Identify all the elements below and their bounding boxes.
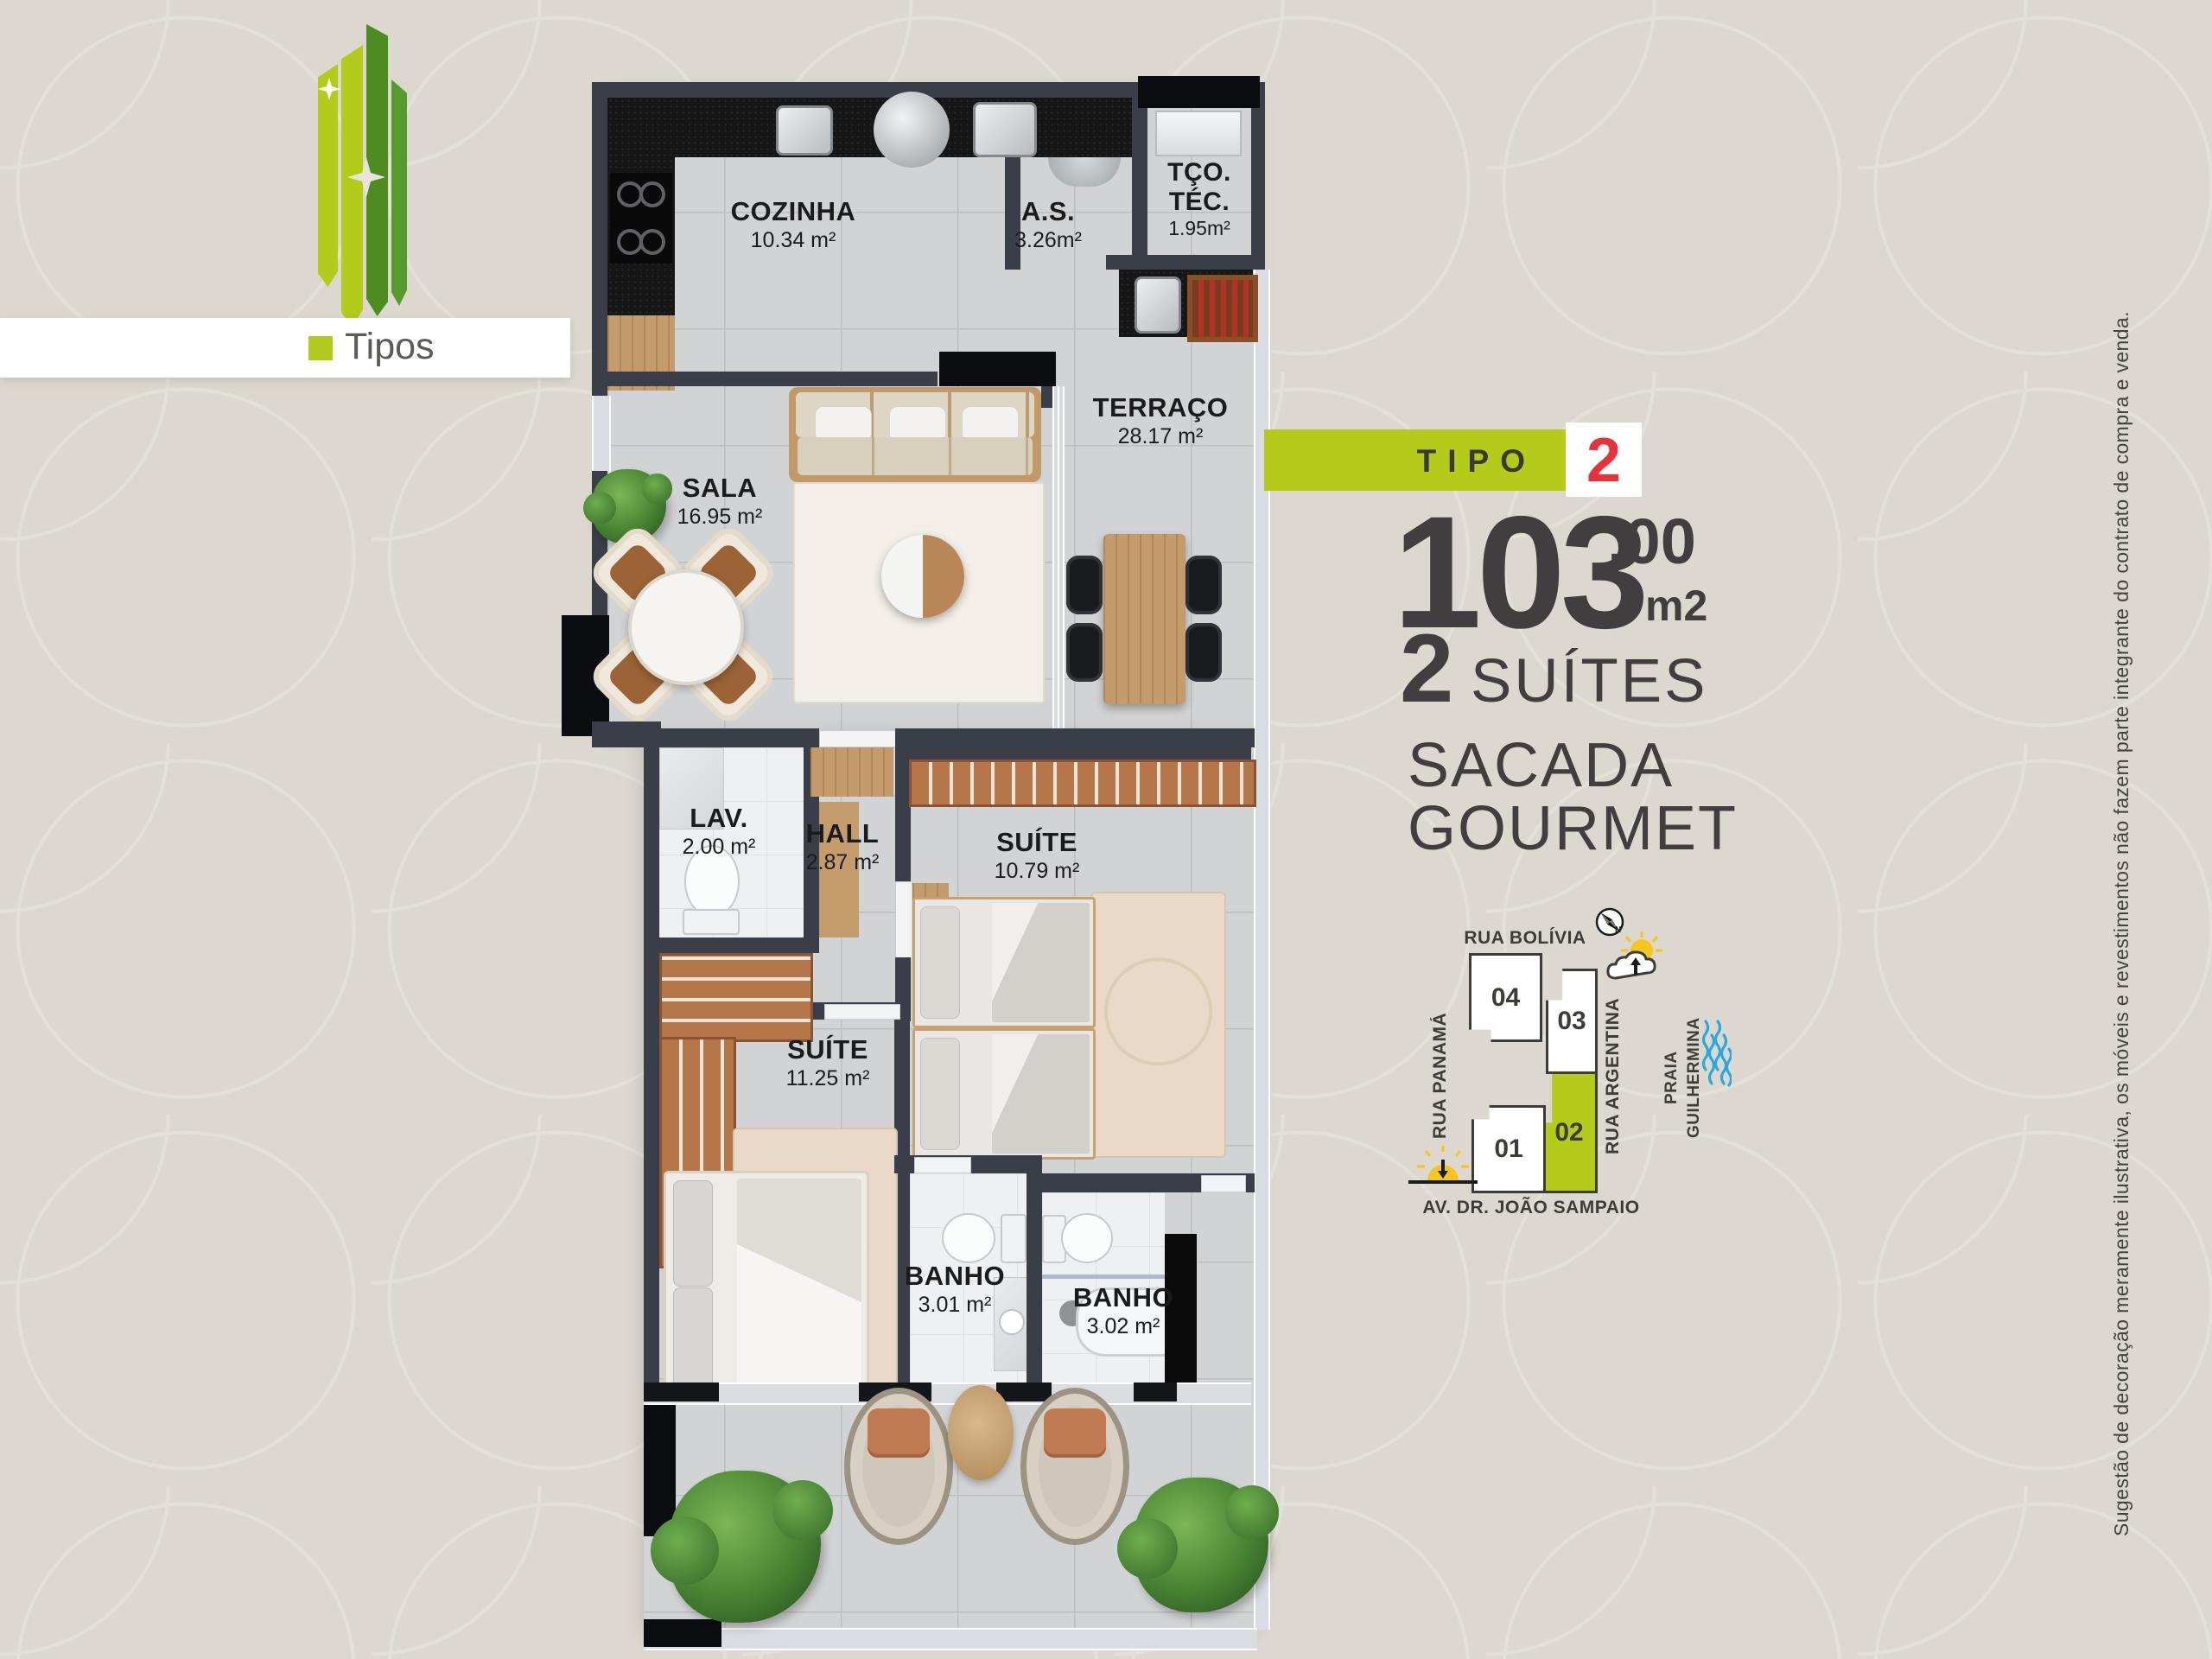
- waves-icon: [1702, 1020, 1732, 1122]
- wall: [592, 728, 819, 747]
- terrace-chair: [1066, 556, 1103, 614]
- feature-sacada: SACADA: [1408, 734, 1674, 797]
- door-opening: [1201, 1175, 1246, 1192]
- shower-glass: [1042, 1274, 1165, 1279]
- gourmet-sink: [1135, 276, 1181, 334]
- suites-label: SUÍTES: [1471, 651, 1707, 712]
- tv-panel: [939, 352, 1056, 386]
- single-bed: [912, 897, 1096, 1028]
- wall: [1106, 255, 1255, 270]
- logo-sparkles-icon: [311, 12, 415, 320]
- single-bed: [912, 1028, 1096, 1160]
- dining-table: [628, 569, 744, 685]
- feature-gourmet: GOURMET: [1408, 798, 1738, 860]
- room-label-terraco: TERRAÇO 28.17 m²: [1074, 393, 1247, 450]
- room-label-banho2: BANHO 3.02 m²: [1050, 1283, 1197, 1340]
- wall: [592, 82, 607, 400]
- tipos-band: Tipos: [0, 318, 570, 378]
- page: Tipos: [0, 0, 2212, 1659]
- tipo-label: TIPO: [1417, 429, 1536, 491]
- toilet-tank: [683, 909, 740, 935]
- kitchen-sink: [776, 105, 833, 156]
- kitchen-countertop: [607, 98, 1132, 157]
- room-label-lav: LAV. 2.00 m²: [650, 804, 788, 861]
- double-bed: [664, 1171, 869, 1403]
- closet: [909, 760, 1256, 807]
- terrace-chair: [1066, 623, 1103, 682]
- sunrise-cloud-icon: [1604, 930, 1668, 987]
- room-label-tco-tec: TÇO. TÉC. 1.95m²: [1147, 158, 1251, 241]
- map-unit-01: 01: [1471, 1105, 1546, 1193]
- chair-pillow: [1044, 1408, 1106, 1458]
- area-unit: m2: [1645, 584, 1707, 627]
- technical-equipment: [1155, 111, 1242, 156]
- toilet: [1061, 1213, 1113, 1263]
- laundry-sink: [973, 102, 1037, 157]
- bed-pillow: [920, 906, 960, 1019]
- room-label-sala: SALA 16.95 m²: [633, 474, 806, 531]
- disclaimer-text: Sugestão de decoração meramente ilustrat…: [2110, 361, 2141, 1536]
- wall: [909, 747, 1251, 760]
- green-square-bullet-icon: [308, 336, 333, 360]
- avenue-label: AV. DR. JOÃO SAMPAIO: [1410, 1198, 1652, 1218]
- room-label-hall: HALL 2.87 m²: [773, 819, 912, 876]
- room-label-as: A.S. 3.26m²: [988, 197, 1109, 254]
- room-label-suite2: SUÍTE 11.25 m²: [741, 1035, 914, 1092]
- wall: [594, 372, 938, 386]
- egg-chair: [1020, 1388, 1129, 1545]
- wall: [1027, 1173, 1042, 1400]
- wall: [1251, 82, 1265, 270]
- map-unit-04: 04: [1469, 953, 1542, 1042]
- toilet: [942, 1213, 995, 1263]
- wall: [1138, 76, 1260, 108]
- room-label-banho1: BANHO 3.01 m²: [886, 1262, 1024, 1319]
- outer-wall: [644, 1628, 1257, 1650]
- wall: [644, 1382, 719, 1402]
- cooktop: [610, 173, 672, 264]
- bed-pillow: [920, 1038, 960, 1150]
- bed-blanket: [737, 1179, 861, 1395]
- door-opening: [819, 730, 897, 747]
- door-opening: [895, 881, 912, 959]
- area-decimal: ,00: [1607, 510, 1696, 574]
- hall-cabinet: [810, 747, 893, 797]
- closet: [659, 953, 813, 1042]
- wall: [1134, 1382, 1177, 1402]
- suites-count: 2: [1400, 620, 1453, 717]
- tipos-label: Tipos: [345, 318, 435, 378]
- terrace-table: [1103, 534, 1185, 704]
- room-label-cozinha: COZINHA 10.34 m²: [698, 197, 888, 254]
- window: [592, 396, 611, 475]
- bed-pillow: [673, 1180, 713, 1287]
- bed-blanket: [992, 1034, 1090, 1154]
- water-heater: [874, 92, 950, 168]
- wall: [644, 938, 819, 953]
- rug: [1090, 892, 1226, 1158]
- door-opening: [824, 1004, 900, 1020]
- tipo-banner: TIPO: [1264, 429, 1566, 491]
- glass-partition: [1052, 386, 1065, 728]
- wall: [1132, 98, 1147, 270]
- barbecue-grill: [1187, 275, 1258, 342]
- side-table: [948, 1385, 1014, 1480]
- sunset-icon: [1405, 1139, 1481, 1192]
- sofa-seat: [798, 437, 1033, 475]
- logo: [311, 12, 415, 320]
- wall: [996, 1382, 1052, 1402]
- room-label-suite1: SUÍTE 10.79 m²: [950, 828, 1123, 885]
- terrace-chair: [1185, 623, 1222, 682]
- coffee-table: [881, 535, 964, 618]
- bed-pillow: [673, 1287, 713, 1394]
- map-unit-03: 03: [1546, 969, 1598, 1074]
- wall: [895, 728, 1255, 747]
- egg-chair: [844, 1388, 953, 1545]
- terrace-chair: [1185, 556, 1222, 614]
- map-unit-02: 02: [1541, 1071, 1598, 1193]
- street-rua-argentina: RUA ARGENTINA: [1600, 981, 1626, 1171]
- wall: [644, 1619, 721, 1647]
- sofa: [789, 387, 1041, 482]
- bed-blanket: [992, 903, 1090, 1022]
- wall: [644, 1382, 676, 1536]
- chair-pillow: [868, 1408, 930, 1458]
- door-opening: [914, 1157, 971, 1173]
- street-rua-bolivia: RUA BOLÍVIA: [1430, 928, 1620, 949]
- toilet-tank: [1001, 1214, 1027, 1263]
